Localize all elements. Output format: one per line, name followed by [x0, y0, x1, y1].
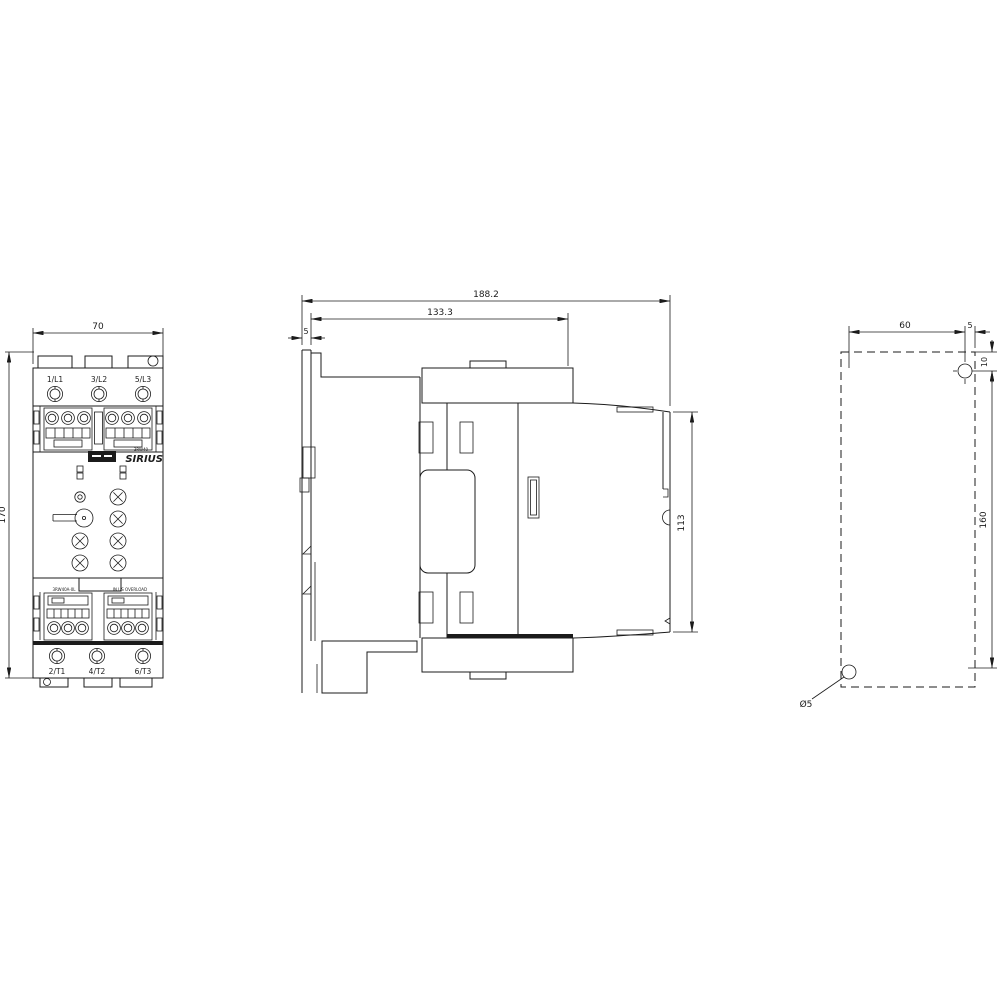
clamp-terminal-icon [76, 622, 89, 635]
terminal-label-5L3: 5/L3 [135, 375, 151, 384]
upper-clamp-blocks [34, 406, 162, 452]
clamp-terminal-icon [78, 412, 91, 425]
side-total-depth-label: 188.2 [473, 290, 499, 300]
rear-hole-spacing-h-label: 60 [899, 321, 911, 331]
side-rail-label: 5 [303, 327, 308, 336]
type-small-label: 3RW40 [134, 447, 149, 452]
clamp-terminal-icon [62, 622, 75, 635]
front-height-label: 170 [0, 506, 8, 523]
screw-terminal-icon [47, 386, 62, 401]
clamp-terminal-icon [46, 412, 59, 425]
clamp-terminal-icon [62, 412, 75, 425]
side-body-depth-label: 133.3 [427, 308, 453, 318]
adjustment-pot-icon [72, 533, 88, 549]
aux-right-label: IN US OVERLOAD [113, 587, 147, 592]
din-rail-strip [300, 350, 420, 693]
brand-label: SIRIUS [125, 454, 163, 465]
adjustment-pot-icon [110, 555, 126, 571]
load-terminal-screws: 2/T1 4/T2 6/T3 [49, 648, 152, 676]
mounting-hole-bottom: Ø5 [800, 665, 856, 710]
clamp-terminal-icon [108, 622, 121, 635]
terminal-label-4T2: 4/T2 [89, 667, 106, 676]
clamp-terminal-icon [122, 412, 135, 425]
screw-terminal-icon [49, 648, 64, 663]
side-total-depth-dimension: 188.2 [302, 290, 670, 406]
mounting-hole-top [953, 364, 972, 384]
rear-hole-spacing-v-label: 160 [979, 511, 989, 528]
adjustment-pot-icon [72, 555, 88, 571]
rear-top-offset-label: 10 [980, 357, 989, 367]
aux-left-label: 3RW40A-0L [52, 587, 76, 592]
side-front-height-label: 113 [677, 514, 687, 531]
clamp-terminal-icon [122, 622, 135, 635]
front-height-dimension: 170 [0, 352, 34, 678]
rear-top-offset-dimension: 10 [972, 340, 997, 383]
side-body-depth-dimension: 133.3 [311, 308, 568, 366]
technical-drawing: 70 170 1/L1 3/L2 5/L3 [0, 0, 1000, 1000]
clamp-terminal-icon [136, 622, 149, 635]
front-width-label: 70 [92, 322, 104, 332]
side-front-height-dimension: 113 [673, 412, 698, 632]
terminal-label-3L2: 3/L2 [91, 375, 107, 384]
terminal-label-2T1: 2/T1 [49, 667, 66, 676]
rear-drilling-view: Ø5 60 5 10 160 [800, 321, 997, 710]
clamp-terminal-icon [106, 412, 119, 425]
rear-hole-spacing-h-dimension: 60 [849, 321, 965, 368]
device-outline-dashed [841, 352, 975, 687]
front-width-dimension: 70 [33, 322, 163, 364]
rear-edge-offset-dimension: 5 [967, 321, 990, 348]
screw-terminal-icon [135, 648, 150, 663]
clamp-terminal-icon [48, 622, 61, 635]
hole-diameter-label: Ø5 [800, 699, 813, 710]
rear-hole-spacing-v-dimension: 160 [968, 371, 997, 668]
terminal-label-1L1: 1/L1 [47, 375, 63, 384]
dimension-drawing-page: 70 170 1/L1 3/L2 5/L3 [0, 0, 1000, 1000]
front-view: 70 170 1/L1 3/L2 5/L3 [0, 322, 163, 687]
rear-edge-offset-label: 5 [967, 321, 972, 330]
side-rail-dimension: 5 [288, 327, 325, 338]
screw-terminal-icon [91, 386, 106, 401]
screw-terminal-icon [89, 648, 104, 663]
side-body [419, 361, 670, 679]
terminal-label-6T3: 6/T3 [135, 667, 152, 676]
side-view: 188.2 133.3 5 113 [288, 290, 698, 693]
clamp-terminal-icon [138, 412, 151, 425]
adjustment-pot-icon [110, 489, 126, 505]
line-terminal-screws: 1/L1 3/L2 5/L3 [47, 375, 151, 402]
adjustment-pot-icon [110, 533, 126, 549]
lower-clamp-blocks: 3RW40A-0L IN US OVERLOAD [34, 587, 162, 640]
adjustment-panel [53, 489, 126, 571]
screw-terminal-icon [135, 386, 150, 401]
adjustment-pot-icon [110, 511, 126, 527]
